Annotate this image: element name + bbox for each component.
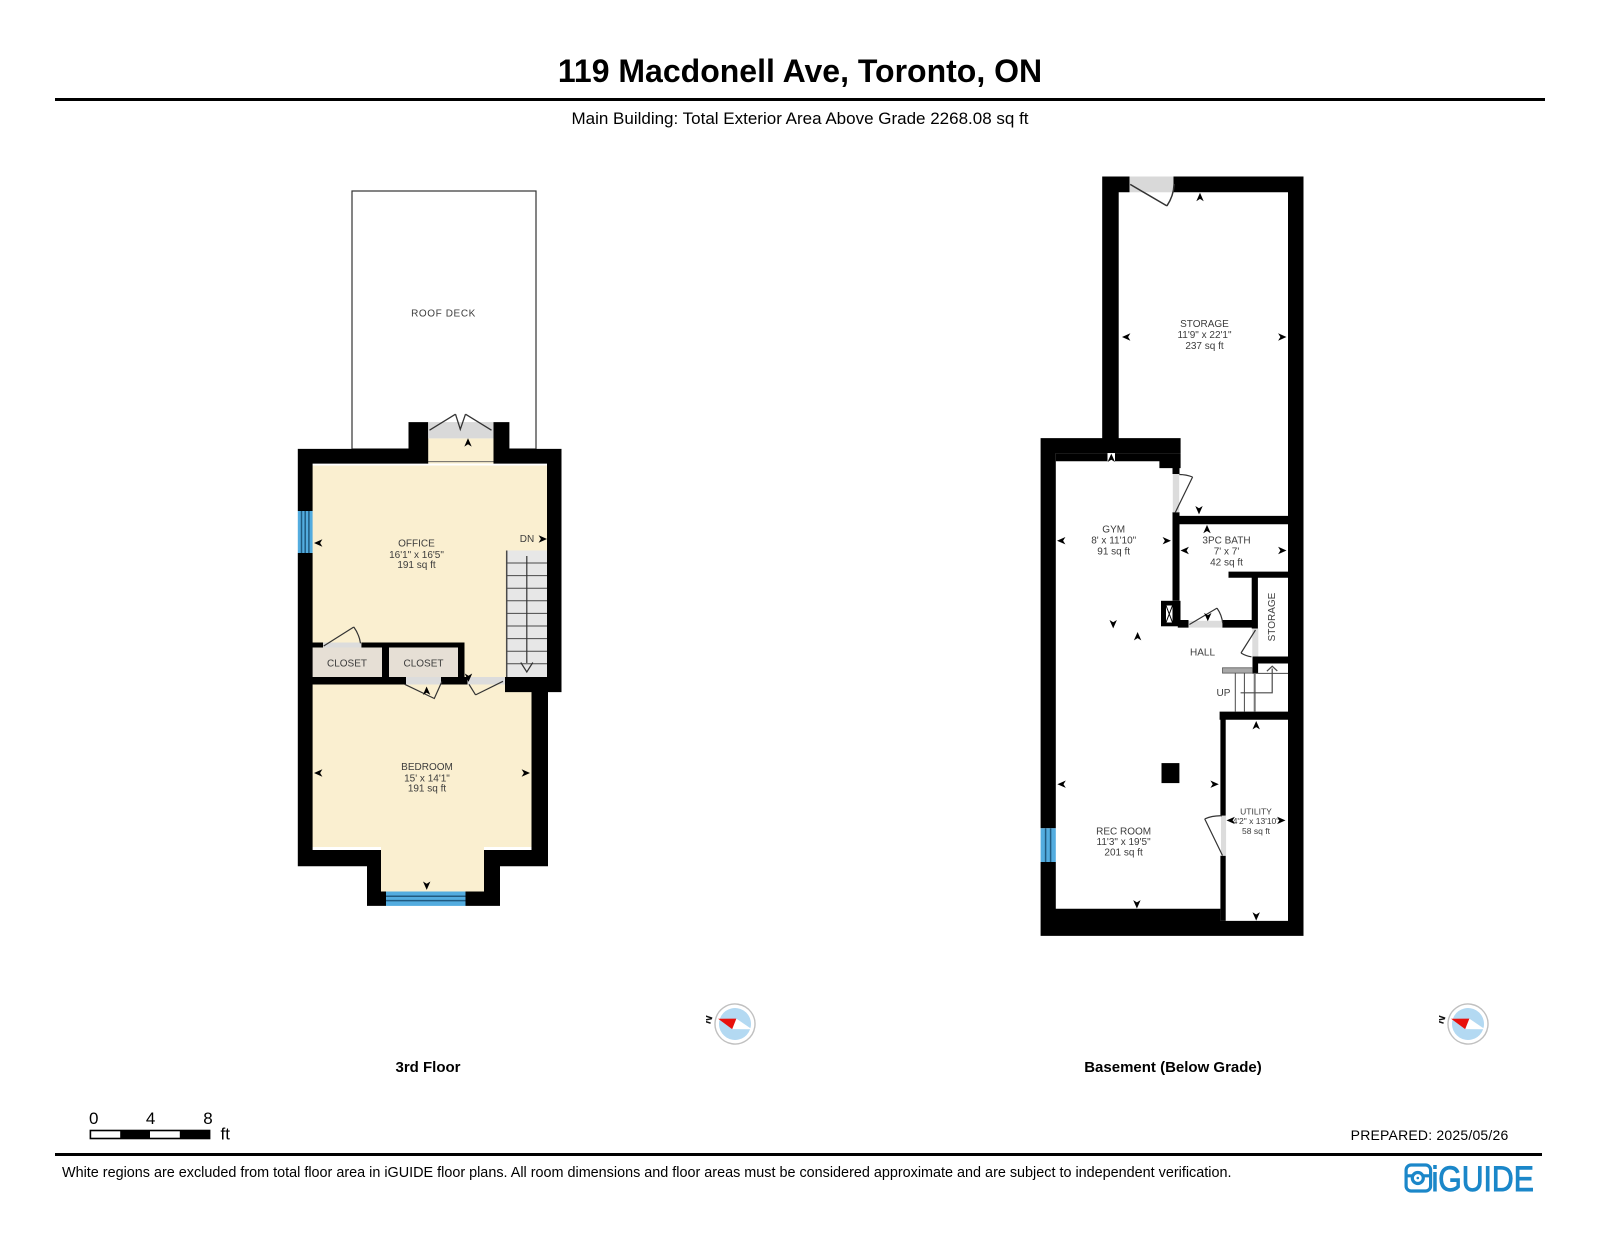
svg-text:11'3" x 19'5": 11'3" x 19'5": [1097, 837, 1152, 848]
svg-text:STORAGE: STORAGE: [1180, 319, 1229, 330]
svg-text:iGUIDE: iGUIDE: [1432, 1160, 1534, 1196]
svg-text:CLOSET: CLOSET: [327, 659, 367, 670]
svg-text:DN: DN: [520, 534, 534, 545]
svg-text:237 sq ft: 237 sq ft: [1185, 341, 1224, 352]
svg-text:8: 8: [203, 1109, 212, 1128]
svg-text:58 sq ft: 58 sq ft: [1242, 826, 1271, 836]
svg-text:N: N: [1439, 1014, 1449, 1026]
svg-text:7' x 7': 7' x 7': [1214, 547, 1240, 558]
svg-text:ft: ft: [221, 1125, 231, 1144]
svg-text:191 sq ft: 191 sq ft: [397, 560, 436, 571]
svg-text:191 sq ft: 191 sq ft: [408, 784, 447, 795]
svg-text:42 sq ft: 42 sq ft: [1210, 558, 1243, 569]
svg-text:91 sq ft: 91 sq ft: [1097, 547, 1130, 558]
svg-text:ROOF DECK: ROOF DECK: [411, 309, 476, 320]
svg-text:0: 0: [89, 1109, 98, 1128]
svg-text:11'9" x 22'1": 11'9" x 22'1": [1177, 330, 1232, 341]
svg-text:HALL: HALL: [1190, 648, 1215, 659]
svg-text:4: 4: [146, 1109, 155, 1128]
svg-text:REC ROOM: REC ROOM: [1096, 826, 1151, 837]
svg-text:STORAGE: STORAGE: [1267, 592, 1278, 641]
svg-text:4'2" x 13'10": 4'2" x 13'10": [1233, 816, 1280, 826]
svg-text:8' x 11'10": 8' x 11'10": [1091, 536, 1136, 547]
svg-text:CLOSET: CLOSET: [403, 659, 443, 670]
svg-text:3PC BATH: 3PC BATH: [1202, 536, 1250, 547]
svg-text:N: N: [706, 1014, 716, 1026]
svg-text:UP: UP: [1217, 688, 1231, 699]
svg-text:UTILITY: UTILITY: [1240, 807, 1272, 817]
svg-text:201 sq ft: 201 sq ft: [1104, 848, 1143, 859]
svg-text:GYM: GYM: [1102, 525, 1125, 536]
svg-text:BEDROOM: BEDROOM: [401, 762, 453, 773]
svg-text:OFFICE: OFFICE: [398, 539, 435, 550]
